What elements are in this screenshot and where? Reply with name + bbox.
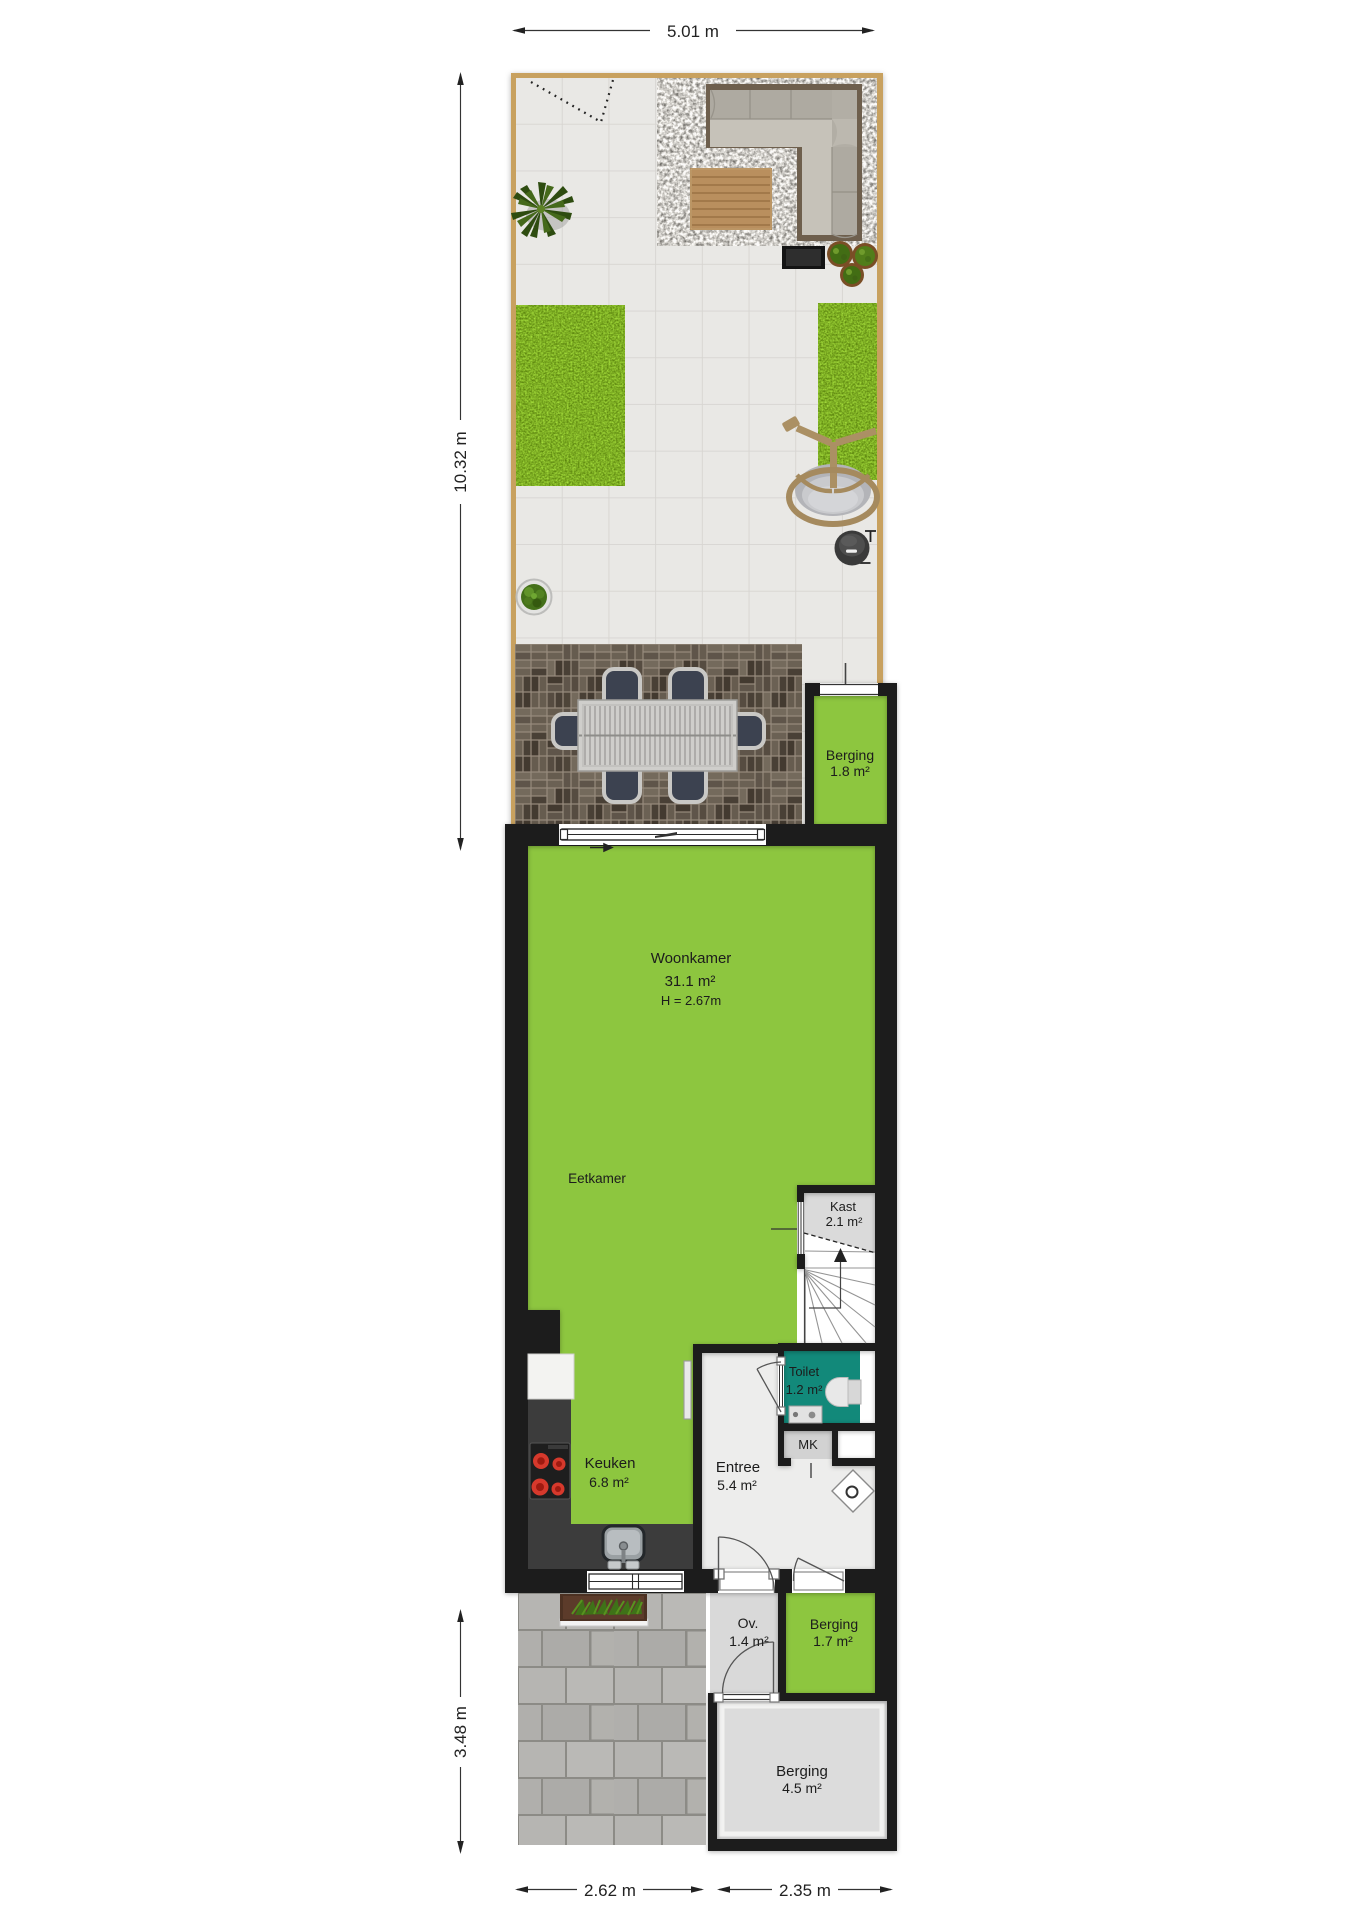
svg-text:Berging: Berging [826, 747, 874, 763]
svg-text:MK: MK [798, 1437, 818, 1452]
svg-text:Toilet: Toilet [789, 1364, 820, 1379]
svg-text:Entree: Entree [716, 1459, 760, 1476]
svg-text:3.48 m: 3.48 m [451, 1706, 470, 1758]
svg-text:10.32 m: 10.32 m [451, 431, 470, 492]
svg-text:Kast: Kast [830, 1199, 856, 1214]
svg-text:6.8 m²: 6.8 m² [589, 1474, 629, 1490]
svg-text:2.35 m: 2.35 m [779, 1881, 831, 1900]
svg-text:5.01 m: 5.01 m [667, 22, 719, 41]
svg-text:1.8 m²: 1.8 m² [830, 763, 870, 779]
svg-text:2.1 m²: 2.1 m² [826, 1214, 864, 1229]
svg-text:5.4 m²: 5.4 m² [717, 1477, 757, 1493]
svg-text:H = 2.67m: H = 2.67m [661, 993, 721, 1008]
svg-text:2.62 m: 2.62 m [584, 1881, 636, 1900]
svg-text:1.2 m²: 1.2 m² [786, 1382, 824, 1397]
svg-text:Berging: Berging [776, 1763, 828, 1780]
svg-text:1.4 m²: 1.4 m² [729, 1633, 769, 1649]
svg-text:4.5 m²: 4.5 m² [782, 1780, 822, 1796]
svg-text:1.7 m²: 1.7 m² [813, 1633, 853, 1649]
svg-text:Eetkamer: Eetkamer [568, 1171, 626, 1186]
svg-text:31.1 m²: 31.1 m² [665, 973, 716, 990]
svg-text:Ov.: Ov. [738, 1615, 759, 1631]
svg-text:Woonkamer: Woonkamer [651, 950, 732, 967]
svg-text:Berging: Berging [810, 1616, 858, 1632]
svg-text:Keuken: Keuken [585, 1455, 636, 1472]
